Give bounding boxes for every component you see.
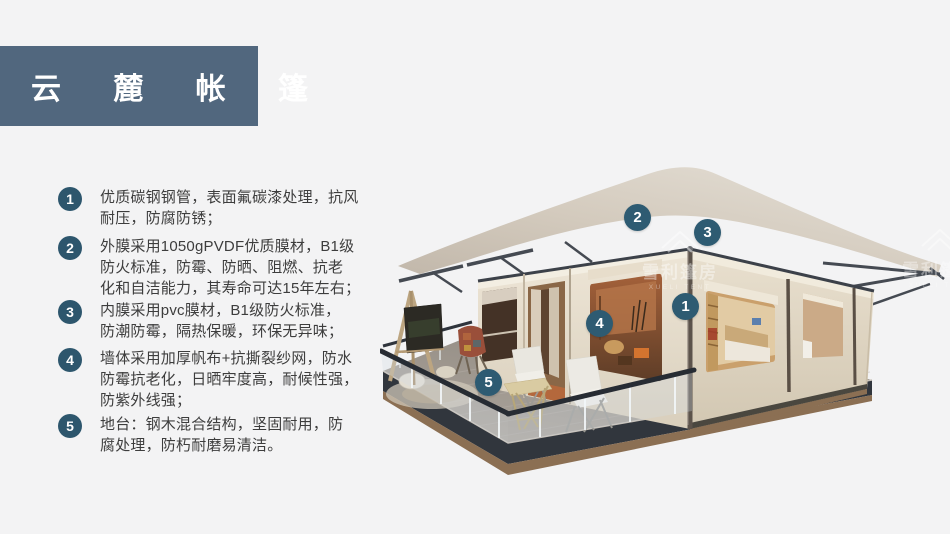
feature-text: 外膜采用1050gPVDF优质膜材，B1级 防火标准，防霉、防晒、阻燃、抗老 化… <box>100 236 400 299</box>
front-window-small <box>482 287 517 362</box>
feature-text: 墙体采用加厚帆布+抗撕裂纱网，防水 防霉抗老化，日晒牢度高，耐候性强， 防紫外线… <box>100 348 400 411</box>
brand-logo-icon <box>922 230 950 250</box>
watermark-brand: 雪利篷房 <box>642 262 718 282</box>
watermark-brand: 雪利篷房 <box>902 260 950 280</box>
feature-text: 优质碳钢钢管，表面氟碳漆处理，抗风 耐压，防腐防锈； <box>100 187 400 229</box>
feature-number-badge: 5 <box>58 414 82 438</box>
feature-number-badge: 3 <box>58 300 82 324</box>
feature-number-badge: 4 <box>58 348 82 372</box>
feature-number-badge: 1 <box>58 187 82 211</box>
feature-number-badge: 2 <box>58 236 82 260</box>
watermark-brand-en: XUELI TENT <box>649 284 711 291</box>
tent-render: 雪利篷房 XUELI TENT 雪利篷房 XUELI TENT <box>380 150 950 490</box>
callout-4: 4 <box>586 310 613 337</box>
slide-canvas: 云 麓 帐 篷 1 优质碳钢钢管，表面氟碳漆处理，抗风 耐压，防腐防锈； 2 外… <box>0 0 950 534</box>
feature-item-1: 1 优质碳钢钢管，表面氟碳漆处理，抗风 耐压，防腐防锈； <box>58 187 400 229</box>
side-window-far <box>803 293 843 358</box>
feature-item-4: 4 墙体采用加厚帆布+抗撕裂纱网，防水 防霉抗老化，日晒牢度高，耐候性强， 防紫… <box>58 348 400 411</box>
feature-item-3: 3 内膜采用pvc膜材，B1级防火标准， 防潮防霉，隔热保暖，环保无异味； <box>58 300 400 342</box>
callout-5: 5 <box>475 369 502 396</box>
feature-item-2: 2 外膜采用1050gPVDF优质膜材，B1级 防火标准，防霉、防晒、阻燃、抗老… <box>58 236 400 299</box>
callout-3: 3 <box>694 219 721 246</box>
feature-text: 内膜采用pvc膜材，B1级防火标准， 防潮防霉，隔热保暖，环保无异味； <box>100 300 400 342</box>
callout-1: 1 <box>672 293 699 320</box>
callout-2: 2 <box>624 204 651 231</box>
tent-illustration: 雪利篷房 XUELI TENT 雪利篷房 XUELI TENT 2 3 1 4 … <box>380 150 950 490</box>
feature-item-5: 5 地台：钢木混合结构，坚固耐用，防 腐处理，防朽耐磨易清洁。 <box>58 414 400 456</box>
feature-text: 地台：钢木混合结构，坚固耐用，防 腐处理，防朽耐磨易清洁。 <box>100 414 400 456</box>
side-window-near <box>704 280 778 372</box>
page-title: 云 麓 帐 篷 <box>0 64 330 108</box>
title-band: 云 麓 帐 篷 <box>0 46 258 126</box>
watermark-brand-en: XUELI TENT <box>909 282 950 289</box>
